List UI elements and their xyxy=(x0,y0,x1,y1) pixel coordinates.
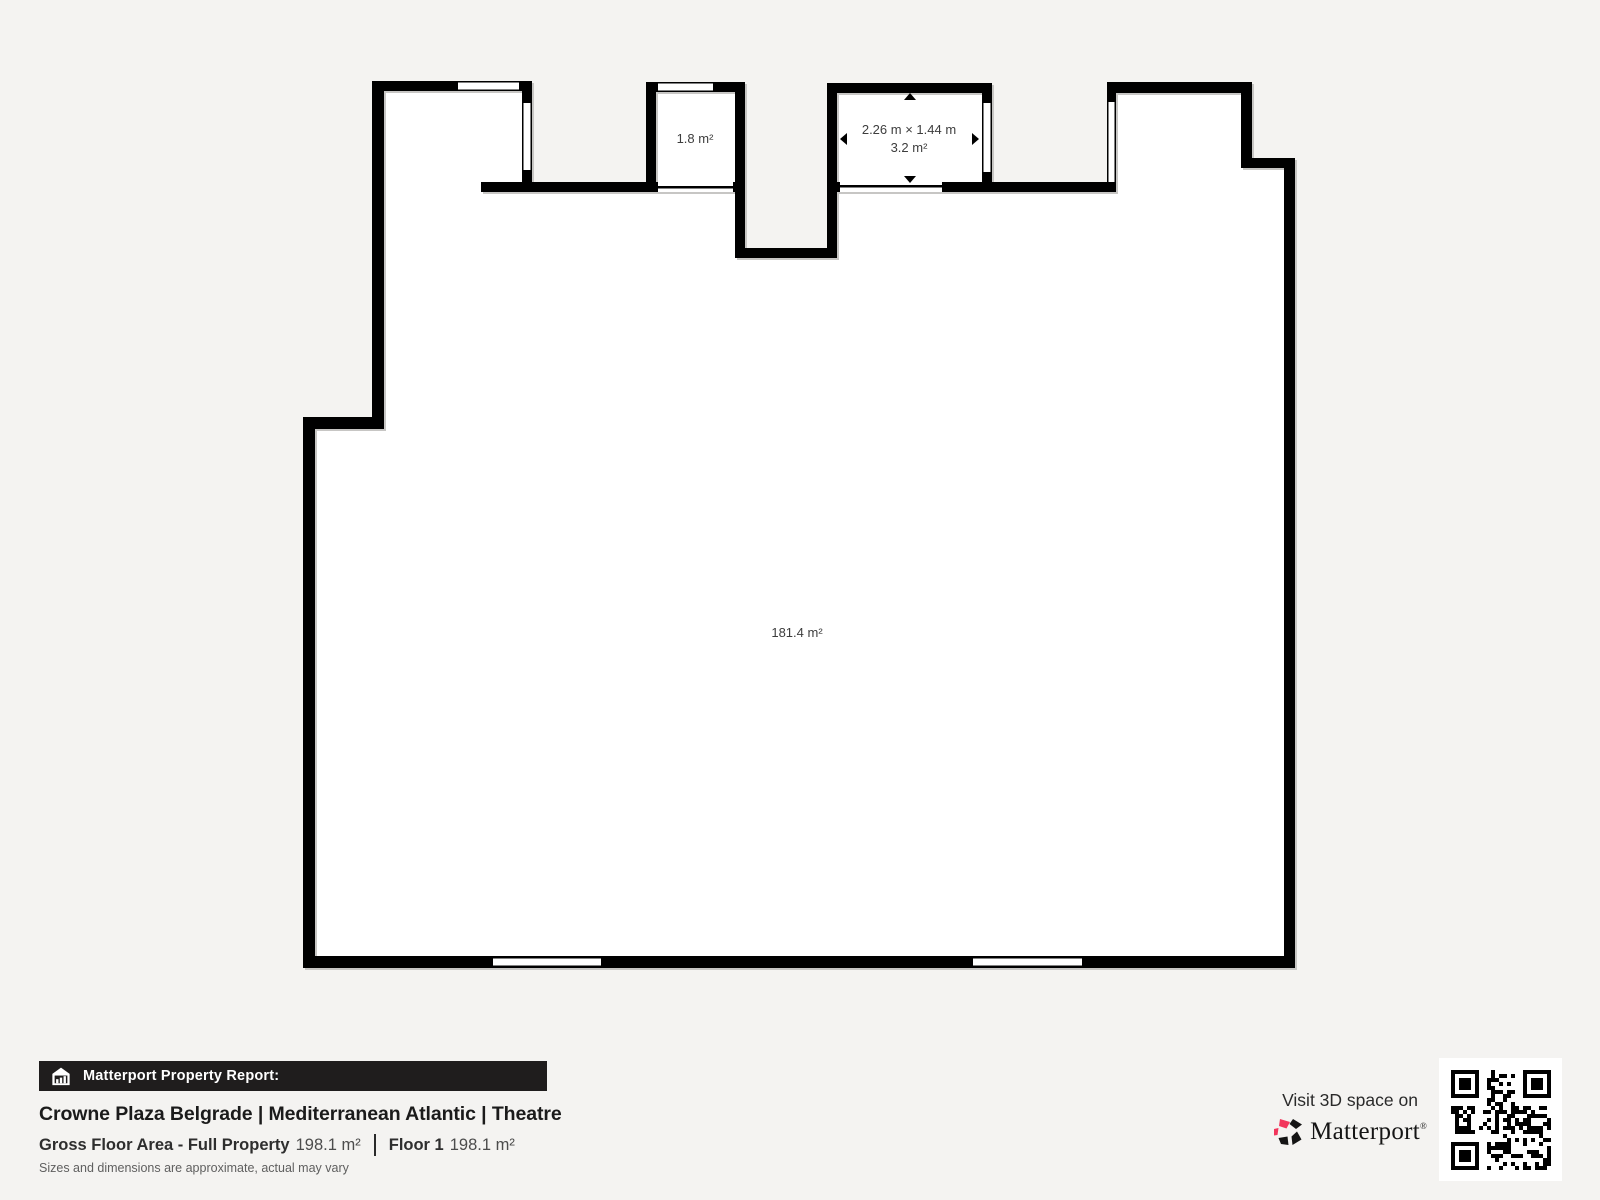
window xyxy=(493,959,601,966)
matterport-wordmark: Matterport® xyxy=(1310,1118,1427,1146)
window xyxy=(458,83,519,90)
door-line xyxy=(840,185,942,188)
gross-floor-area-label: Gross Floor Area - Full Property xyxy=(39,1136,290,1155)
disclaimer-text: Sizes and dimensions are approximate, ac… xyxy=(39,1161,349,1175)
area-summary: Gross Floor Area - Full Property 198.1 m… xyxy=(39,1134,515,1156)
door-line xyxy=(658,186,733,189)
room-label-storage-area: 3.2 m² xyxy=(891,140,929,155)
trademark-symbol: ® xyxy=(1420,1121,1427,1131)
room-label-closet: 1.8 m² xyxy=(677,131,715,146)
window xyxy=(658,84,713,91)
window xyxy=(973,959,1082,966)
floor-plan: 1.8 m² 2.26 m × 1.44 m 3.2 m² 181.4 m² xyxy=(0,0,1600,1010)
visit-3d-space-text: Visit 3D space on xyxy=(1250,1090,1450,1111)
floor-label: Floor 1 xyxy=(389,1136,444,1155)
property-report-page: 1.8 m² 2.26 m × 1.44 m 3.2 m² 181.4 m² M… xyxy=(0,0,1600,1200)
floor-value: 198.1 m² xyxy=(450,1136,515,1155)
property-title: Crowne Plaza Belgrade | Mediterranean At… xyxy=(39,1103,562,1126)
metric-divider xyxy=(374,1134,376,1156)
matterport-logo-icon xyxy=(1273,1118,1303,1146)
matterport-promo: Visit 3D space on Matterport® xyxy=(1250,1090,1450,1146)
window xyxy=(524,103,531,170)
qr-code xyxy=(1439,1058,1562,1181)
report-banner: Matterport Property Report: xyxy=(39,1061,547,1091)
window xyxy=(984,103,991,172)
window xyxy=(1109,102,1115,182)
qr-code-pattern xyxy=(1451,1070,1551,1170)
gross-floor-area-value: 198.1 m² xyxy=(296,1136,361,1155)
report-banner-label: Matterport Property Report: xyxy=(83,1068,279,1084)
room-label-storage-dimensions: 2.26 m × 1.44 m xyxy=(862,122,956,137)
house-chart-icon xyxy=(50,1066,72,1086)
room-label-main-area: 181.4 m² xyxy=(771,625,823,640)
